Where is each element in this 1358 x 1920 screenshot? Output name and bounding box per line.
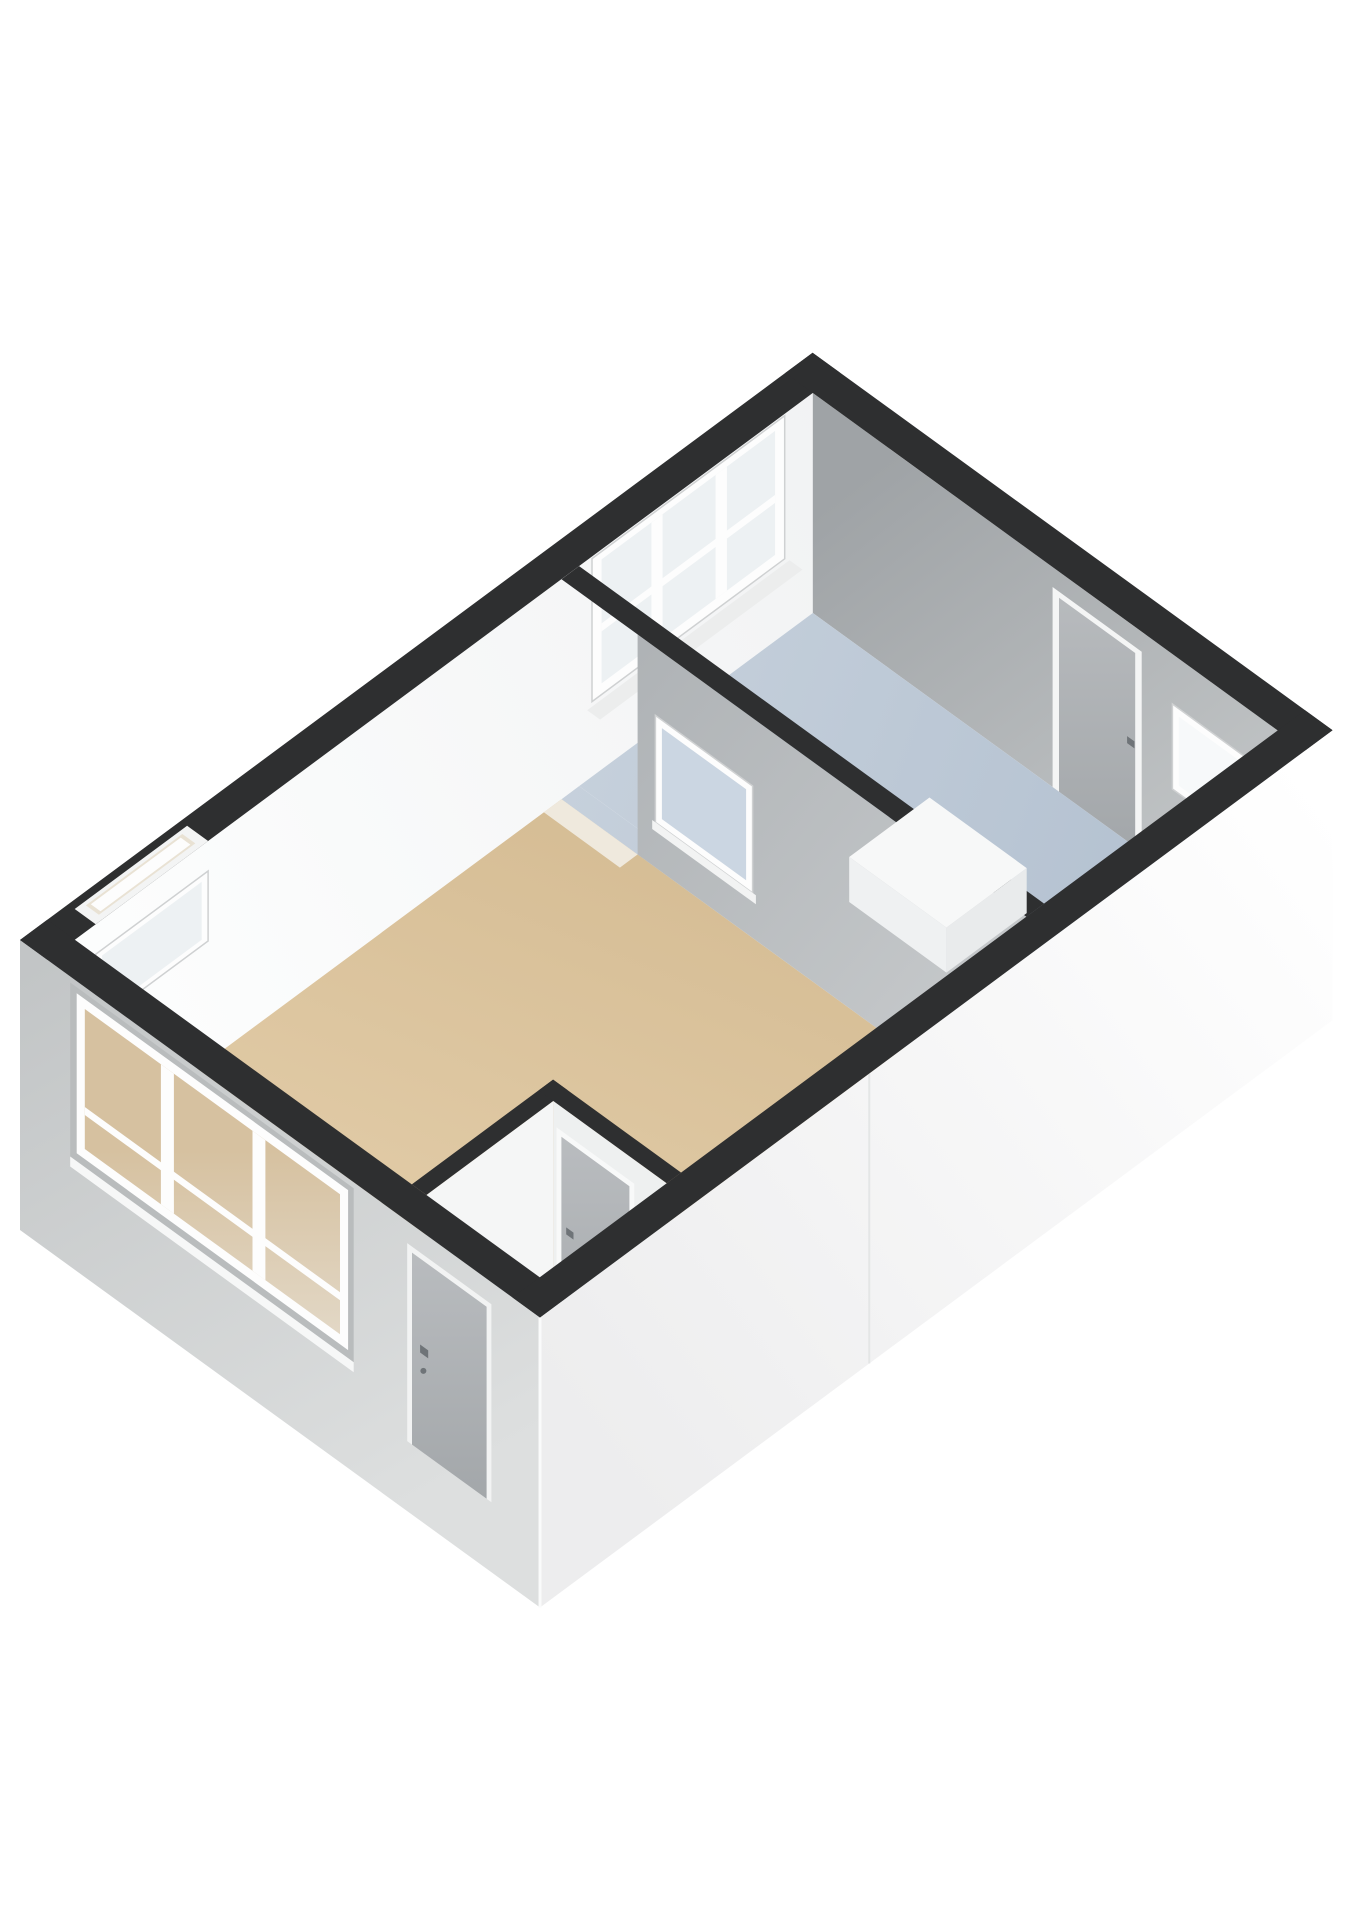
living-window-mullion xyxy=(161,1064,174,1213)
floorplan-3d-render xyxy=(0,0,1358,1920)
floorplan-viewport xyxy=(0,0,1358,1920)
entry-door-keyhole xyxy=(420,1368,426,1374)
living-window-mullion xyxy=(253,1131,266,1280)
